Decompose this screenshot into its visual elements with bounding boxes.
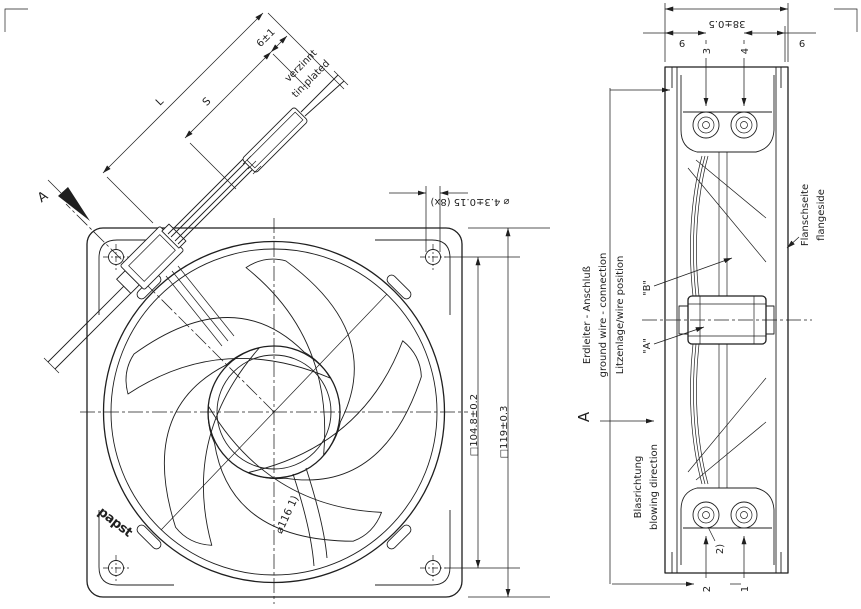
cable-strip-label: S	[200, 95, 213, 108]
bottom-terminal-pocket	[681, 488, 774, 565]
airflow-label-en: blowing direction	[649, 444, 660, 530]
cable-assembly	[44, 71, 348, 373]
depth-label: 38±0.5	[708, 18, 745, 29]
cable-length-label: L	[154, 95, 167, 108]
ground-wire-label-en: ground wire - connection	[598, 253, 609, 378]
impeller-diameter-label: ⌀116 1)	[273, 494, 301, 536]
side-view-label-a: A	[575, 411, 593, 422]
terminal-1-label: 1	[740, 586, 751, 592]
wire-position-label: Litzenlage/wire position	[615, 256, 626, 375]
side-view: 38±0.5 9 9 3 4 2 1 2)	[575, 3, 827, 592]
fan-technical-drawing: ⌀116 1) papst A	[0, 0, 861, 609]
drawing-canvas: ⌀116 1) papst A	[0, 0, 861, 609]
terminal-2-label: 2	[702, 586, 713, 592]
wire-position-a: "A"	[642, 338, 653, 354]
airflow-annotations: A Blasrichtung blowing direction	[575, 411, 660, 530]
wire-position-b: "B"	[642, 280, 653, 296]
cable-tip-dim: 6±1	[255, 27, 278, 50]
terminal-3-label: 3	[702, 48, 713, 54]
flange-label-de: Flanschseite	[800, 184, 811, 246]
mounting-hole-dimension: ⌀ 4.3±0.15 (8x)	[389, 186, 510, 252]
view-arrow-a-label: A	[35, 189, 51, 206]
frame-size-label: □119±0.3	[499, 406, 510, 459]
flange-side-label: Flanschseite flangeside	[787, 184, 827, 248]
terminal-footnote-label: 2)	[715, 544, 726, 554]
left-offset-dimension: 9	[643, 33, 706, 48]
front-view: ⌀116 1) papst A	[35, 13, 550, 604]
right-offset-label: 9	[799, 37, 805, 48]
airflow-label-de: Blasrichtung	[633, 456, 644, 519]
top-terminal-pocket	[681, 75, 774, 152]
hole-spacing-label: □104.8±0.2	[469, 394, 480, 456]
flange-label-en: flangeside	[816, 189, 827, 241]
ground-wire-label-de: Erdleiter - Anschluß	[582, 266, 593, 364]
view-arrow-a: A	[35, 180, 90, 221]
cable-dimensions: L S 6±1 verzinnt tin-plated	[103, 13, 344, 223]
depth-dimension: 38±0.5	[665, 3, 788, 62]
terminal-leaders-top: 3 4	[702, 40, 751, 106]
right-offset-dimension: 9	[744, 26, 816, 62]
cable-sleeve	[242, 107, 308, 173]
terminal-4-label: 4	[740, 48, 751, 54]
square-dimensions: □104.8±0.2 □119±0.3	[445, 228, 550, 597]
mounting-holes-label: ⌀ 4.3±0.15 (8x)	[430, 196, 509, 207]
hub-strut	[293, 474, 314, 566]
terminal-leaders-bottom: 2 1 2)	[612, 527, 751, 592]
papst-logo: papst	[95, 505, 135, 541]
left-offset-label: 9	[679, 37, 685, 48]
